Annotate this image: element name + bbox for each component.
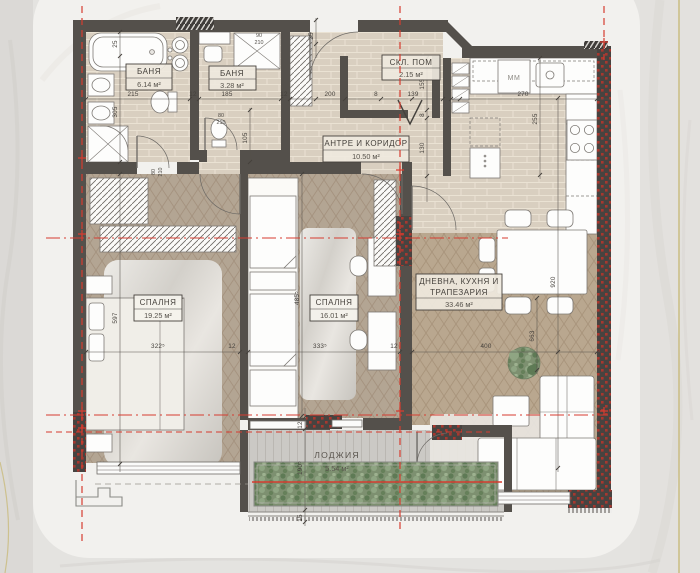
- bedroom-2-south-wall: [363, 418, 412, 430]
- room-area: 33.46 м²: [445, 300, 473, 309]
- room-name: ЛОДЖИЯ: [314, 450, 359, 460]
- toilet: [151, 91, 177, 113]
- coffee-table: [493, 396, 529, 426]
- kitchen-entry-wall: [443, 58, 451, 176]
- bedroom-1-wardrobe: [100, 226, 236, 252]
- corner-wall-block: [568, 490, 612, 508]
- desk-chair: [350, 330, 367, 350]
- interior-wall: [177, 162, 199, 174]
- door-tag: 80: [151, 169, 157, 175]
- dining-chair: [505, 210, 531, 227]
- dining-chair: [505, 297, 531, 314]
- nightstand: [86, 276, 112, 294]
- room-label-bedroom-1: СПАЛНЯ 19.25 м²: [134, 295, 182, 321]
- sink: [88, 102, 114, 124]
- exterior-wall-left: [73, 20, 86, 472]
- dim-text: 333⁵: [313, 343, 327, 350]
- room-label-storage: СКЛ. ПОМ 2.15 м²: [382, 55, 440, 80]
- dim-text: 25: [308, 32, 315, 40]
- wall-marker: [176, 17, 214, 30]
- room-area: 5.54 м²: [325, 464, 349, 473]
- pillow: [89, 334, 104, 361]
- floorplan-screenshot: 215 12 185 12 200 8 139 270 25 305 105 2…: [0, 0, 700, 573]
- interior-wall: [240, 150, 290, 162]
- bedside-shelf: [250, 272, 296, 290]
- room-name: СПАЛНЯ: [140, 298, 177, 307]
- dim-text: 12: [280, 91, 288, 98]
- washing-machine-label: MM: [508, 75, 521, 82]
- dim-text: 15: [297, 514, 304, 522]
- dim-text: 920: [550, 276, 557, 287]
- dim-text: 8: [419, 113, 426, 117]
- interior-wall: [240, 162, 361, 174]
- room-area: 2.15 м²: [399, 70, 423, 79]
- dim-text: 12: [297, 421, 304, 429]
- dim-text: 12: [228, 343, 236, 350]
- dim-text: 400: [480, 343, 491, 350]
- room-area: 10.50 м²: [352, 152, 380, 161]
- kitchen-counter-top: [470, 58, 597, 94]
- room-area: 3.28 м²: [220, 81, 244, 90]
- loggia-planter: [254, 462, 498, 506]
- dim-text: 25: [112, 40, 119, 48]
- dim-text: 12: [390, 343, 398, 350]
- room-label-entry-corridor: АНТРЕ И КОРИДОР 10.50 м²: [323, 136, 409, 162]
- room-name: ДНЕВНА, КУХНЯ И: [419, 277, 499, 286]
- door-tag: 210: [158, 168, 164, 177]
- dim-text: 8: [374, 91, 378, 98]
- bedroom-2-beds: [248, 178, 298, 420]
- corridor-leg-floor: [412, 174, 451, 233]
- exterior-wall-top: [358, 20, 448, 32]
- room-name: СПАЛНЯ: [316, 298, 353, 307]
- room-name: БАНЯ: [137, 67, 161, 76]
- exterior-wall-right-insulated: [597, 46, 611, 508]
- dim-text: 130: [419, 142, 426, 153]
- dim-text: 255: [532, 113, 539, 124]
- stove: [567, 120, 597, 160]
- room-name: БАНЯ: [220, 69, 244, 78]
- corner-wall-hatch: [568, 508, 612, 513]
- interior-wall: [199, 150, 207, 162]
- pillow: [89, 303, 104, 330]
- room-area: 19.25 м²: [144, 311, 172, 320]
- room-label-bath-1: БАНЯ 6.14 м²: [126, 64, 172, 90]
- door-tag: 210: [255, 40, 264, 46]
- storage-room-wall: [340, 110, 408, 118]
- door-tag: 80: [218, 113, 224, 119]
- dim-text: 215: [127, 91, 138, 98]
- desk-chair: [350, 256, 367, 276]
- dresser: [250, 370, 296, 406]
- dim-text: 139: [407, 91, 418, 98]
- single-bed: [250, 294, 296, 366]
- bedroom-1-wardrobe: [90, 178, 148, 224]
- structural-column: [396, 216, 412, 266]
- dining-chair: [547, 297, 573, 314]
- shower: [88, 126, 128, 162]
- dim-text: 190⁵: [297, 461, 304, 475]
- dim-text: 485⁵: [294, 291, 301, 305]
- room-area: 16.01 м²: [320, 311, 348, 320]
- dim-text: 597: [112, 312, 119, 323]
- dim-text: 12: [189, 91, 197, 98]
- bedroom-divider-wall: [240, 174, 248, 420]
- dim-text: 322⁵: [151, 343, 165, 350]
- interior-wall: [86, 162, 137, 174]
- bedroom-2-wardrobe: [374, 180, 396, 266]
- door-tag: 210: [217, 120, 226, 126]
- dining-chair: [547, 210, 573, 227]
- room-label-bedroom-2: СПАЛНЯ 16.01 м²: [310, 295, 358, 321]
- single-bed: [250, 196, 296, 268]
- dim-text: 200: [324, 91, 335, 98]
- desk: [368, 312, 396, 370]
- interior-wall: [402, 162, 412, 174]
- dim-text: 270: [517, 91, 528, 98]
- room-label-living: ДНЕВНА, КУХНЯ И ТРАПЕЗАРИЯ 33.46 м²: [416, 274, 502, 310]
- room-name: АНТРЕ И КОРИДОР: [324, 139, 407, 148]
- loggia-left-wall: [240, 430, 248, 512]
- storage-room-wall: [340, 56, 348, 118]
- room-name: ТРАПЕЗАРИЯ: [430, 288, 488, 297]
- dim-text: 305: [112, 106, 119, 117]
- dim-text: 185: [221, 91, 232, 98]
- sink: [88, 74, 114, 96]
- room-label-bath-2: БАНЯ 3.28 м²: [209, 66, 256, 90]
- dining-chair: [479, 238, 495, 262]
- exterior-wall-left-insulated: [73, 412, 86, 472]
- dim-text: 105: [242, 132, 249, 143]
- nightstand: [86, 434, 112, 452]
- entry-wardrobe: [290, 36, 312, 106]
- room-area: 6.14 м²: [137, 80, 161, 89]
- dim-text: 663: [529, 330, 536, 341]
- room-name: СКЛ. ПОМ: [390, 58, 433, 67]
- door-tag: 90: [256, 33, 262, 39]
